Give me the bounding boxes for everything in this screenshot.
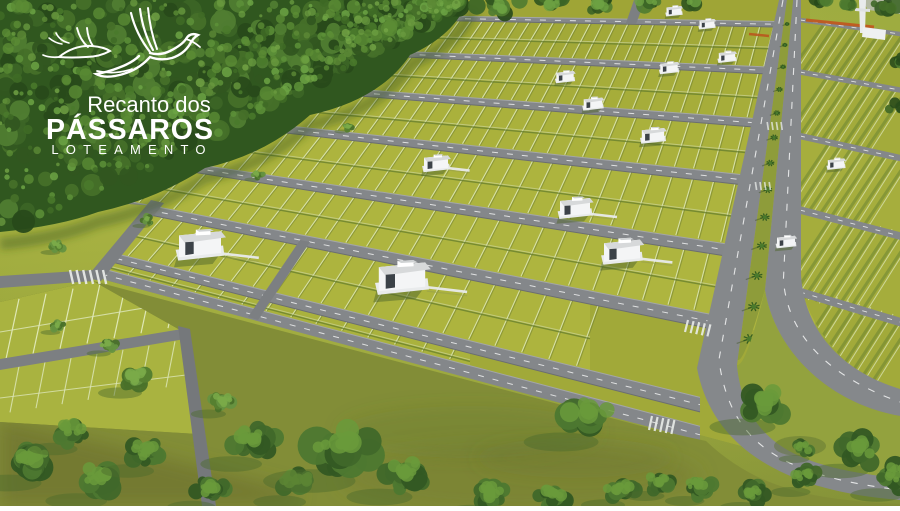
svg-text:LOTEAMENTO: LOTEAMENTO (51, 142, 212, 157)
